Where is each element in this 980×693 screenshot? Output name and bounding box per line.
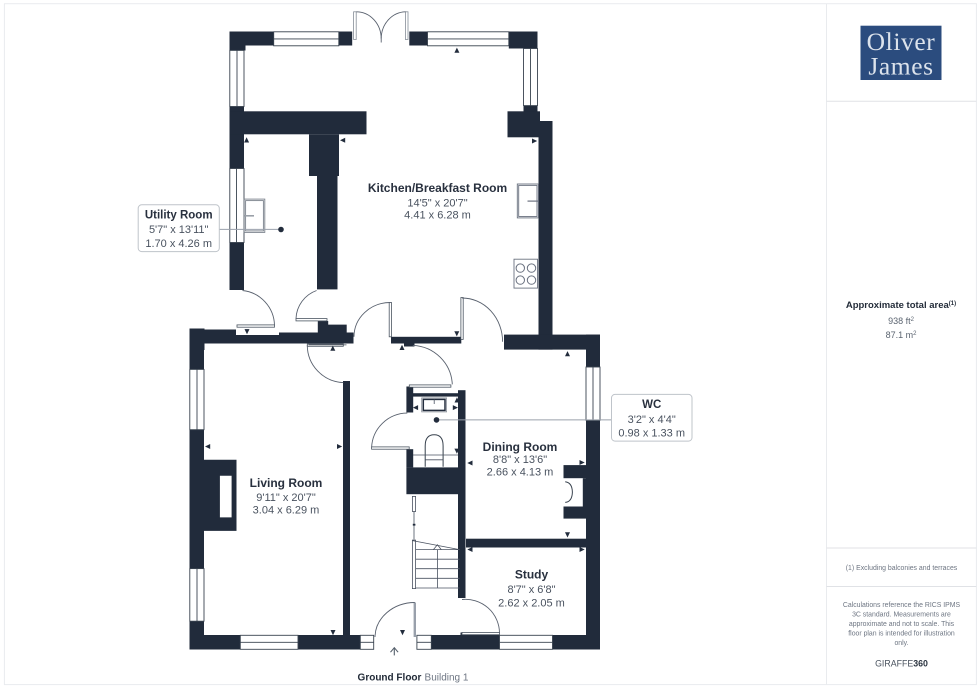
svg-text:5'7" x 13'11": 5'7" x 13'11" xyxy=(149,224,209,236)
svg-text:87.1 m2: 87.1 m2 xyxy=(886,330,918,340)
svg-text:only.: only. xyxy=(894,640,908,647)
svg-text:(1) Excluding balconies and te: (1) Excluding balconies and terraces xyxy=(846,565,958,572)
svg-text:Study: Study xyxy=(515,568,549,582)
svg-text:approximate and not to scale.: approximate and not to scale. This xyxy=(849,621,955,628)
svg-text:WC: WC xyxy=(642,399,661,411)
svg-text:Kitchen/Breakfast Room: Kitchen/Breakfast Room xyxy=(368,181,507,195)
svg-text:0.98 x 1.33 m: 0.98 x 1.33 m xyxy=(618,427,685,439)
svg-text:14'5" x 20'7": 14'5" x 20'7" xyxy=(407,197,467,209)
svg-text:3C standard. Measurements are: 3C standard. Measurements are xyxy=(852,611,951,618)
svg-text:Ground Floor: Ground Floor xyxy=(358,673,422,684)
svg-text:Living Room: Living Room xyxy=(250,476,323,490)
svg-text:James: James xyxy=(868,52,933,81)
svg-text:Utility Room: Utility Room xyxy=(145,209,213,221)
svg-text:Building 1: Building 1 xyxy=(425,673,469,684)
svg-text:1.70 x 4.26 m: 1.70 x 4.26 m xyxy=(145,238,212,250)
svg-text:Approximate total area(1): Approximate total area(1) xyxy=(846,300,956,311)
svg-text:Dining Room: Dining Room xyxy=(483,440,558,454)
svg-text:floor plan is intended for ill: floor plan is intended for illustration xyxy=(848,630,955,637)
svg-text:2.66 x 4.13 m: 2.66 x 4.13 m xyxy=(487,467,554,479)
svg-text:3.04 x 6.29 m: 3.04 x 6.29 m xyxy=(253,505,320,517)
svg-text:Calculations reference the RIC: Calculations reference the RICS IPMS xyxy=(843,602,961,609)
svg-text:4.41 x 6.28 m: 4.41 x 6.28 m xyxy=(404,210,471,222)
svg-text:GIRAFFE360: GIRAFFE360 xyxy=(875,659,928,669)
svg-text:8'7" x 6'8": 8'7" x 6'8" xyxy=(507,584,555,596)
svg-text:3'2" x 4'4": 3'2" x 4'4" xyxy=(628,414,676,426)
svg-text:2.62 x 2.05 m: 2.62 x 2.05 m xyxy=(498,598,565,610)
svg-text:8'8" x 13'6": 8'8" x 13'6" xyxy=(493,454,547,466)
svg-text:9'11" x 20'7": 9'11" x 20'7" xyxy=(256,492,316,504)
